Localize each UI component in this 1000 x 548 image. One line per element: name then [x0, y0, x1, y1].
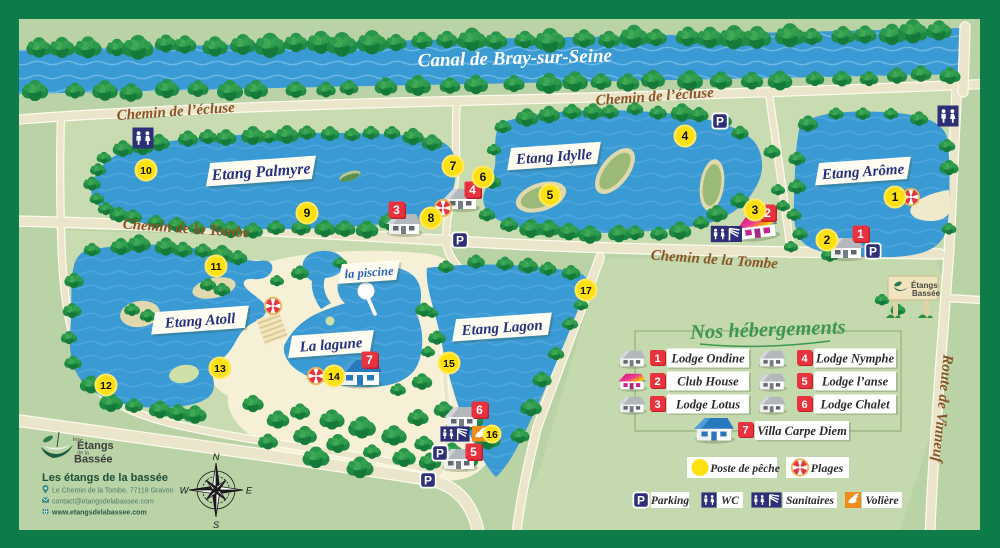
svg-text:6: 6: [476, 403, 483, 417]
svg-text:W: W: [180, 486, 190, 497]
svg-text:1: 1: [857, 227, 864, 241]
svg-text:9: 9: [304, 206, 311, 220]
svg-text:Sanitaires: Sanitaires: [786, 495, 834, 507]
svg-text:Lodge Nymphe: Lodge Nymphe: [815, 352, 895, 366]
svg-text:contact@etangsdelabassee.com: contact@etangsdelabassee.com: [52, 499, 154, 506]
svg-text:Plages: Plages: [811, 461, 844, 475]
svg-text:E: E: [246, 486, 253, 497]
svg-text:16: 16: [486, 429, 498, 441]
svg-text:10: 10: [140, 165, 152, 177]
svg-text:4: 4: [682, 129, 689, 143]
svg-text:Poste de pêche: Poste de pêche: [710, 463, 780, 475]
svg-text:3: 3: [654, 399, 660, 411]
svg-text:13: 13: [214, 363, 226, 375]
svg-text:8: 8: [428, 211, 435, 225]
svg-text:1: 1: [892, 190, 899, 204]
svg-text:Lodge Chalet: Lodge Chalet: [819, 398, 890, 412]
svg-text:6: 6: [801, 399, 807, 411]
svg-text:Bassée: Bassée: [912, 289, 941, 298]
svg-text:www.etangsdelabassee.com: www.etangsdelabassee.com: [51, 510, 147, 517]
svg-text:S: S: [213, 520, 220, 531]
svg-text:N: N: [213, 452, 220, 463]
svg-text:Villa Carpe Diem: Villa Carpe Diem: [757, 424, 847, 438]
svg-text:Lodge Ondine: Lodge Ondine: [670, 352, 745, 366]
svg-text:Club House: Club House: [677, 375, 739, 389]
svg-text:Les étangs de la bassée: Les étangs de la bassée: [42, 472, 168, 484]
svg-text:7: 7: [450, 159, 457, 173]
svg-text:2: 2: [654, 376, 660, 388]
svg-text:5: 5: [801, 376, 807, 388]
svg-text:7: 7: [742, 425, 748, 437]
svg-text:4: 4: [801, 353, 808, 365]
svg-text:Volière: Volière: [865, 495, 898, 507]
svg-text:15: 15: [443, 358, 455, 370]
svg-text:12: 12: [100, 380, 112, 392]
svg-text:Parking: Parking: [651, 495, 690, 507]
svg-text:7: 7: [366, 353, 373, 367]
svg-text:Bassée: Bassée: [74, 454, 113, 466]
svg-text:6: 6: [480, 170, 487, 184]
svg-text:Le Chemin de la Tombe, 77118 G: Le Chemin de la Tombe, 77118 Gravon: [52, 488, 174, 495]
svg-text:Lodge Lotus: Lodge Lotus: [675, 398, 740, 412]
svg-text:3: 3: [393, 203, 400, 217]
svg-text:11: 11: [210, 261, 221, 273]
svg-text:WC: WC: [721, 495, 739, 507]
svg-text:5: 5: [547, 188, 554, 202]
svg-text:17: 17: [580, 285, 592, 297]
svg-text:Lodge l’anse: Lodge l’anse: [821, 375, 889, 389]
svg-text:14: 14: [328, 371, 340, 383]
svg-text:3: 3: [752, 203, 759, 217]
svg-text:2: 2: [824, 233, 831, 247]
svg-text:1: 1: [654, 353, 660, 365]
svg-text:5: 5: [470, 445, 477, 459]
